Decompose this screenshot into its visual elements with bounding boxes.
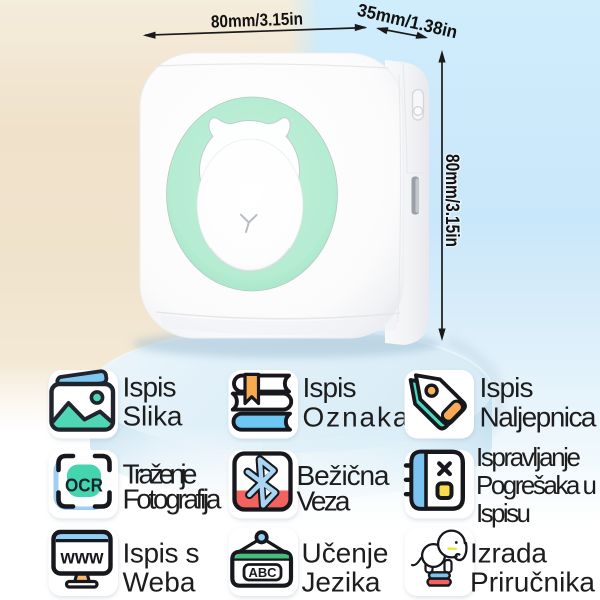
svg-text:www: www <box>60 548 104 569</box>
svg-text:Naljepnica: Naljepnica <box>480 402 597 433</box>
svg-text:Slika: Slika <box>123 400 183 431</box>
svg-text:OCR: OCR <box>65 475 103 496</box>
svg-text:Ispisu: Ispisu <box>476 498 531 528</box>
svg-text:ABC: ABC <box>249 566 277 580</box>
svg-text:Weba: Weba <box>123 566 196 597</box>
svg-text:Ispravljanje: Ispravljanje <box>476 442 581 472</box>
svg-text:Izrada: Izrada <box>470 537 547 568</box>
svg-text:Učenje: Učenje <box>302 537 389 568</box>
svg-text:Priručnika: Priručnika <box>470 566 595 597</box>
svg-text:80mm/3.15in: 80mm/3.15in <box>211 8 304 31</box>
svg-text:Oznaka: Oznaka <box>303 402 409 433</box>
svg-text:Pogrešaka u: Pogrešaka u <box>476 470 597 500</box>
svg-text:Ispis s: Ispis s <box>123 537 200 568</box>
svg-text:Fotografija: Fotografija <box>123 483 222 514</box>
svg-text:80mm/3.15in: 80mm/3.15in <box>441 154 462 247</box>
svg-text:Veza: Veza <box>297 486 351 517</box>
svg-text:Ispis: Ispis <box>480 372 534 403</box>
svg-text:Ispis: Ispis <box>123 371 177 402</box>
svg-text:Jezika: Jezika <box>302 566 381 597</box>
svg-text:Ispis: Ispis <box>303 372 357 403</box>
